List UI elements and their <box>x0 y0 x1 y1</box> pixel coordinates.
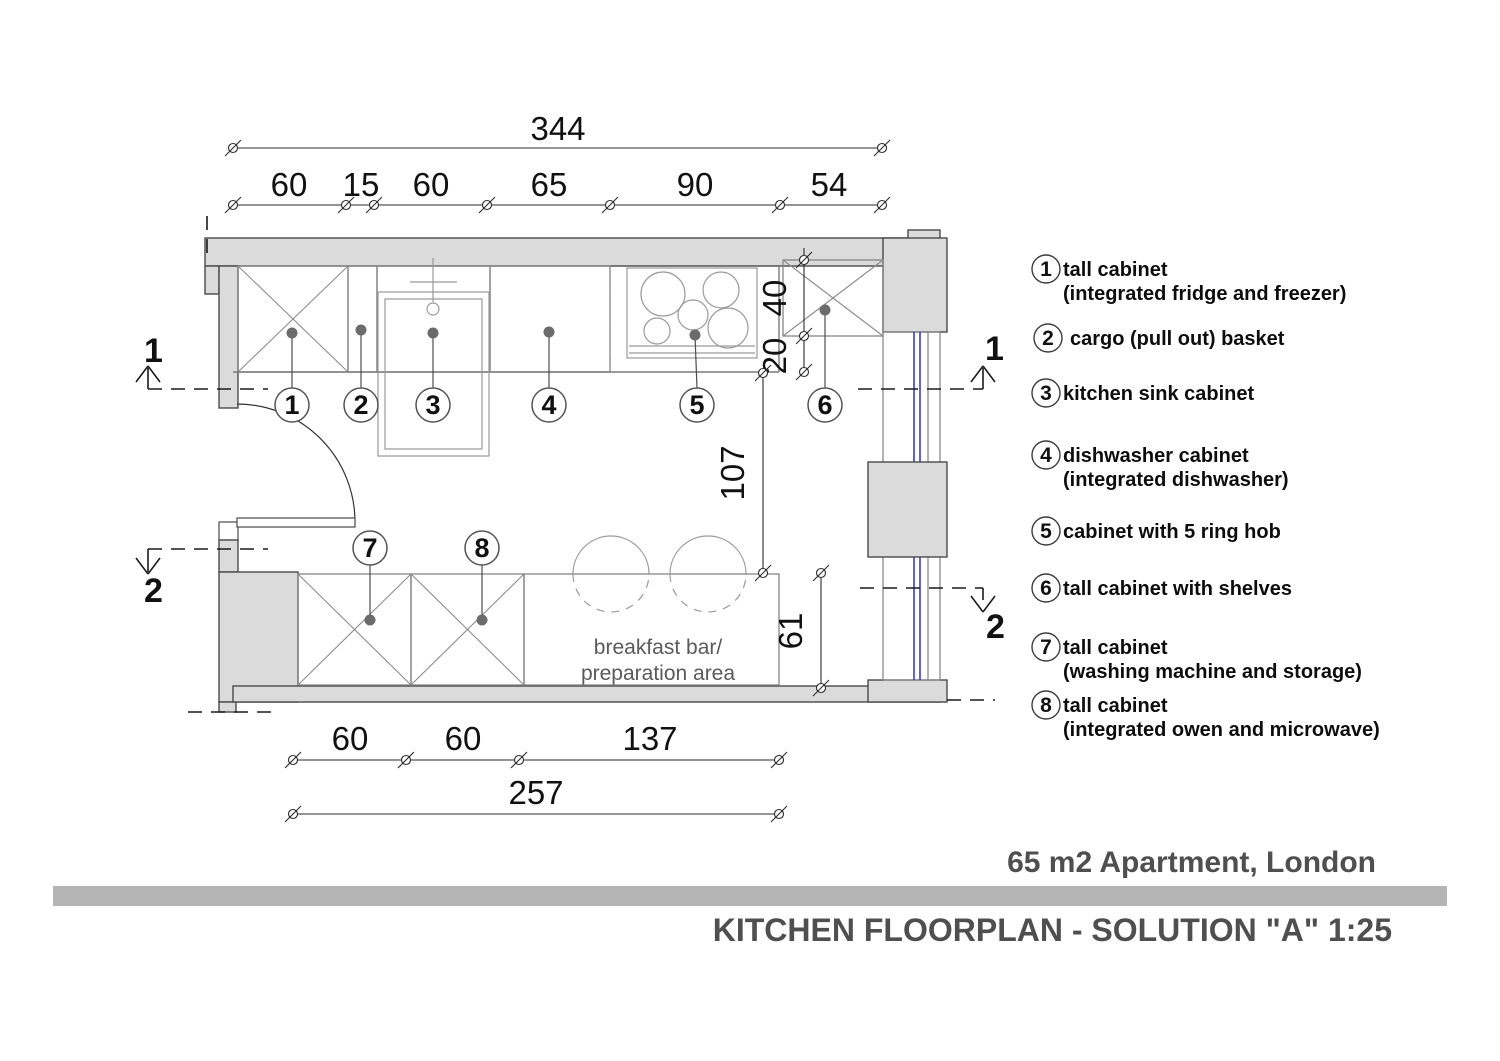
svg-text:6: 6 <box>1040 577 1052 600</box>
callout-4: 4 <box>532 327 566 423</box>
dimension-bottom-segments: 60 60 137 <box>285 720 787 768</box>
callout-6: 6 <box>808 305 842 423</box>
kitchen-floorplan-sheet: breakfast bar/ preparation area 1 2 3 4 … <box>0 0 1500 1061</box>
svg-text:7: 7 <box>362 533 377 563</box>
section-1-label: 1 <box>144 332 163 370</box>
svg-text:cargo (pull out) basket: cargo (pull out) basket <box>1070 328 1285 350</box>
section-marker-1-right: 1 <box>858 330 1004 389</box>
callout-5: 5 <box>680 330 714 423</box>
svg-text:1: 1 <box>284 390 299 420</box>
section-2-label: 2 <box>144 572 163 610</box>
hob-ring-icon <box>703 272 739 308</box>
callout-3: 3 <box>416 328 450 423</box>
legend-item-8: 8 tall cabinet (integrated owen and micr… <box>1032 691 1380 741</box>
dimension-bar-depth: 61 <box>772 565 829 696</box>
svg-text:cabinet with 5 ring hob: cabinet with 5 ring hob <box>1063 521 1281 543</box>
dim-61: 61 <box>772 613 809 650</box>
svg-text:(integrated dishwasher): (integrated dishwasher) <box>1063 469 1289 491</box>
legend-item-6: 6 tall cabinet with shelves <box>1032 574 1292 602</box>
dimension-top-total: 344 <box>225 110 890 156</box>
dim-54: 54 <box>811 166 848 203</box>
bottom-wall <box>233 686 940 702</box>
svg-text:3: 3 <box>425 390 440 420</box>
title-block: 65 m2 Apartment, London KITCHEN FLOORPLA… <box>53 846 1447 948</box>
dimension-cab6: 40 20 <box>756 248 812 380</box>
dimension-passage: 107 <box>714 365 771 581</box>
breakfast-bar-label-line2: preparation area <box>581 662 735 685</box>
dim-65: 65 <box>531 166 568 203</box>
legend-item-3: 3 kitchen sink cabinet <box>1032 379 1255 407</box>
left-wall-strip <box>219 540 238 572</box>
hob-ring-icon <box>708 308 748 348</box>
svg-text:2: 2 <box>1042 327 1054 350</box>
section-2-label: 2 <box>986 608 1005 646</box>
drawing-title: KITCHEN FLOORPLAN - SOLUTION "A" 1:25 <box>713 912 1392 948</box>
svg-text:5: 5 <box>689 390 704 420</box>
right-bottom-block <box>868 680 947 702</box>
dim-60-a: 60 <box>271 166 308 203</box>
section-marker-1-left: 1 <box>136 332 268 389</box>
dim-344: 344 <box>530 110 585 147</box>
project-title: 65 m2 Apartment, London <box>1007 846 1376 879</box>
left-wall-block <box>219 572 298 702</box>
divider-bar <box>53 886 1447 906</box>
svg-text:kitchen sink cabinet: kitchen sink cabinet <box>1063 383 1255 405</box>
wall-below-door <box>219 522 238 540</box>
svg-text:(washing machine and storage): (washing machine and storage) <box>1063 661 1362 683</box>
svg-text:1: 1 <box>1040 258 1052 281</box>
cabinet-6-tall-shelves <box>783 260 883 336</box>
svg-text:5: 5 <box>1040 520 1052 543</box>
top-wall <box>205 238 940 266</box>
svg-text:dishwasher cabinet: dishwasher cabinet <box>1063 445 1249 467</box>
legend-item-5: 5 cabinet with 5 ring hob <box>1032 517 1281 545</box>
dim-60-c: 60 <box>332 720 369 757</box>
svg-text:4: 4 <box>1040 444 1052 467</box>
legend-item-4: 4 dishwasher cabinet (integrated dishwas… <box>1032 441 1289 491</box>
cabinet-4-dishwasher <box>490 266 610 372</box>
dim-257: 257 <box>508 774 563 811</box>
dimension-top-segments: 60 15 60 65 90 54 <box>225 166 890 213</box>
callout-8: 8 <box>465 531 499 626</box>
callout-7: 7 <box>353 531 387 626</box>
walls <box>205 230 947 712</box>
dim-137: 137 <box>622 720 677 757</box>
dim-15: 15 <box>343 166 380 203</box>
window <box>868 332 947 680</box>
dim-90: 90 <box>677 166 714 203</box>
door-leaf <box>237 518 355 527</box>
right-top-corner-block <box>883 238 947 332</box>
svg-text:6: 6 <box>817 390 832 420</box>
floorplan-canvas: breakfast bar/ preparation area 1 2 3 4 … <box>0 0 1500 1061</box>
legend-item-1: 1 tall cabinet (integrated fridge and fr… <box>1032 255 1346 305</box>
dimension-bottom-total: 257 <box>285 774 787 822</box>
svg-text:(integrated owen and microwave: (integrated owen and microwave) <box>1063 719 1380 741</box>
svg-text:2: 2 <box>353 390 368 420</box>
dim-107: 107 <box>714 445 751 500</box>
svg-text:tall cabinet: tall cabinet <box>1063 637 1168 659</box>
legend-item-2: 2 cargo (pull out) basket <box>1034 324 1285 352</box>
door <box>237 404 355 527</box>
dim-60-b: 60 <box>413 166 450 203</box>
hob-5-ring <box>627 268 757 358</box>
window-pillar <box>868 462 947 557</box>
svg-text:3: 3 <box>1040 382 1052 405</box>
left-wall-foot <box>219 702 236 712</box>
left-wall-stub <box>205 266 219 294</box>
cabinet-2-cargo <box>348 266 377 372</box>
svg-text:tall cabinet: tall cabinet <box>1063 695 1168 717</box>
svg-text:tall cabinet with shelves: tall cabinet with shelves <box>1063 578 1292 600</box>
svg-text:tall cabinet: tall cabinet <box>1063 259 1168 281</box>
breakfast-bar-label-line1: breakfast bar/ <box>594 636 723 659</box>
svg-text:(integrated fridge and freezer: (integrated fridge and freezer) <box>1063 283 1346 305</box>
dim-40: 40 <box>756 280 793 317</box>
section-1-label: 1 <box>985 330 1004 368</box>
left-wall-upper <box>219 266 238 408</box>
hob-ring-icon <box>644 318 670 344</box>
legend-item-7: 7 tall cabinet (washing machine and stor… <box>1032 633 1362 683</box>
hob-ring-icon <box>678 300 708 330</box>
callout-2: 2 <box>344 325 378 423</box>
hob-ring-icon <box>641 272 685 316</box>
svg-text:4: 4 <box>541 390 556 420</box>
legend: 1 tall cabinet (integrated fridge and fr… <box>1032 255 1380 741</box>
svg-text:8: 8 <box>1040 694 1052 717</box>
callout-1: 1 <box>275 328 309 423</box>
section-marker-2-right: 2 <box>860 588 1005 646</box>
svg-text:7: 7 <box>1040 636 1052 659</box>
svg-text:8: 8 <box>474 533 489 563</box>
dim-60-d: 60 <box>445 720 482 757</box>
